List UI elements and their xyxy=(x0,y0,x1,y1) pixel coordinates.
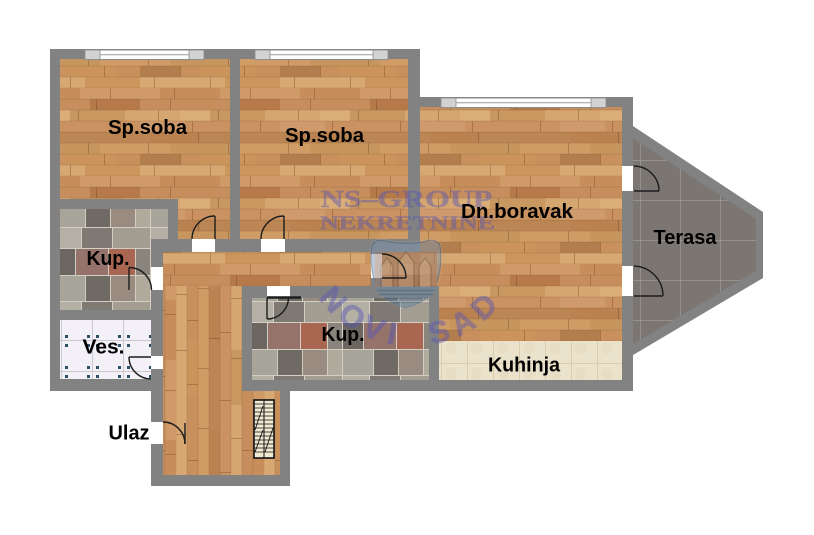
svg-text:Kup.: Kup. xyxy=(87,248,130,270)
svg-text:Ulaz: Ulaz xyxy=(109,423,150,445)
svg-text:Terasa: Terasa xyxy=(654,227,718,249)
svg-text:Kuhinja: Kuhinja xyxy=(488,355,561,377)
svg-text:Sp.soba: Sp.soba xyxy=(108,117,188,139)
svg-text:Dn.boravak: Dn.boravak xyxy=(461,201,574,223)
svg-text:Kup.: Kup. xyxy=(322,324,365,346)
svg-text:Ves.: Ves. xyxy=(83,337,125,359)
svg-text:Sp.soba: Sp.soba xyxy=(285,125,365,147)
